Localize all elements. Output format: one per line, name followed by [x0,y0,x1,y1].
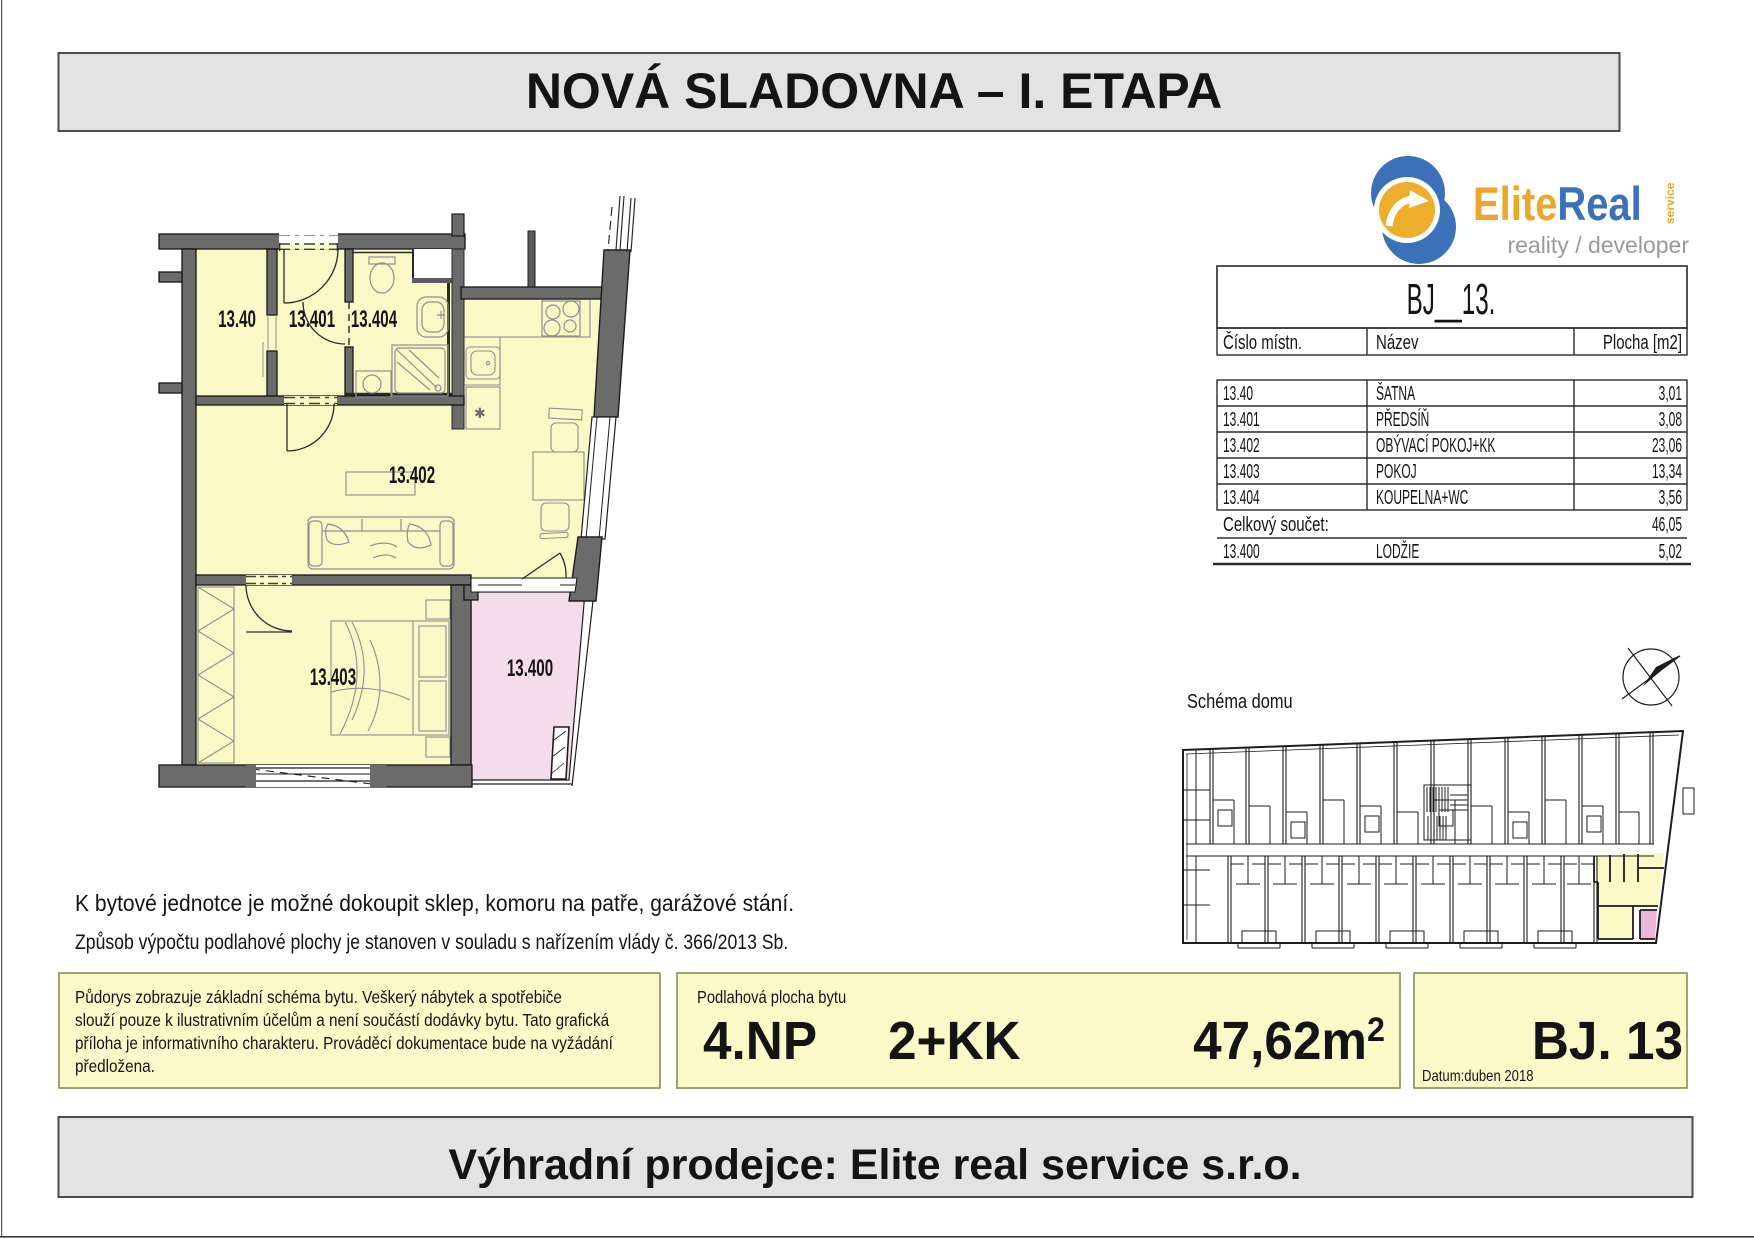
svg-text:13.400: 13.400 [1223,541,1260,563]
svg-text:KOUPELNA+WC: KOUPELNA+WC [1376,487,1468,509]
svg-text:13.40: 13.40 [1223,383,1253,405]
svg-text:47,62m2: 47,62m2 [1193,1011,1385,1071]
svg-text:LODŽIE: LODŽIE [1376,540,1419,563]
svg-text:předložena.: předložena. [75,1056,155,1076]
svg-text:Výhradní prodejce: Elite real: Výhradní prodejce: Elite real service s.… [448,1141,1301,1189]
svg-text:23,06: 23,06 [1652,435,1682,457]
svg-text:Celkový součet:: Celkový součet: [1223,513,1329,536]
svg-text:13.401: 13.401 [289,307,335,333]
svg-text:4.NP: 4.NP [703,1011,817,1071]
svg-text:13.404: 13.404 [1223,487,1260,509]
svg-text:13.400: 13.400 [507,656,553,682]
svg-text:13.401: 13.401 [1223,409,1260,431]
svg-text:service: service [1663,182,1677,224]
svg-text:Název: Název [1376,331,1419,354]
svg-text:ŠATNA: ŠATNA [1376,382,1415,405]
svg-text:BJ. 13: BJ. 13 [1532,1011,1683,1071]
svg-text:13.402: 13.402 [1223,435,1260,457]
svg-text:OBÝVACÍ POKOJ+KK: OBÝVACÍ POKOJ+KK [1376,434,1495,457]
svg-text:příloha je informativního char: příloha je informativního charakteru. Pr… [75,1033,613,1053]
svg-text:13.404: 13.404 [351,307,398,333]
svg-text:46,05: 46,05 [1652,514,1682,536]
svg-text:✱: ✱ [474,405,486,421]
svg-text:EliteReal: EliteReal [1473,179,1642,231]
svg-text:K bytové jednotce je možné dok: K bytové jednotce je možné dokoupit skle… [75,890,794,916]
svg-text:2+KK: 2+KK [888,1011,1021,1071]
svg-text:NOVÁ SLADOVNA – I. ETAPA: NOVÁ SLADOVNA – I. ETAPA [526,63,1222,119]
svg-text:Podlahová plocha bytu: Podlahová plocha bytu [697,988,846,1008]
svg-text:BJ__13.: BJ__13. [1407,274,1496,324]
svg-text:Číslo místn.: Číslo místn. [1223,330,1302,354]
svg-text:PŘEDSÍŇ: PŘEDSÍŇ [1376,408,1429,431]
svg-text:Datum:duben 2018: Datum:duben 2018 [1422,1068,1534,1085]
svg-text:Schéma domu: Schéma domu [1187,689,1293,712]
svg-text:reality / developer: reality / developer [1507,232,1689,258]
svg-text:3,08: 3,08 [1659,409,1682,431]
svg-text:POKOJ: POKOJ [1376,461,1417,483]
svg-text:Půdorys zobrazuje základní sch: Půdorys zobrazuje základní schéma bytu. … [75,987,562,1007]
svg-text:3,56: 3,56 [1659,487,1682,509]
svg-text:slouží pouze k ilustrativním ú: slouží pouze k ilustrativním účelům a ne… [75,1010,610,1030]
svg-text:13.402: 13.402 [389,463,435,489]
svg-text:13.403: 13.403 [1223,461,1260,483]
svg-text:13.40: 13.40 [218,307,256,333]
svg-text:3,01: 3,01 [1659,383,1682,405]
svg-text:5,02: 5,02 [1659,541,1682,563]
svg-text:Způsob výpočtu podlahové ploch: Způsob výpočtu podlahové plochy je stano… [75,931,788,955]
svg-text:13,34: 13,34 [1652,461,1682,483]
svg-text:13.403: 13.403 [310,665,356,691]
svg-text:Plocha [m2]: Plocha [m2] [1603,331,1682,354]
